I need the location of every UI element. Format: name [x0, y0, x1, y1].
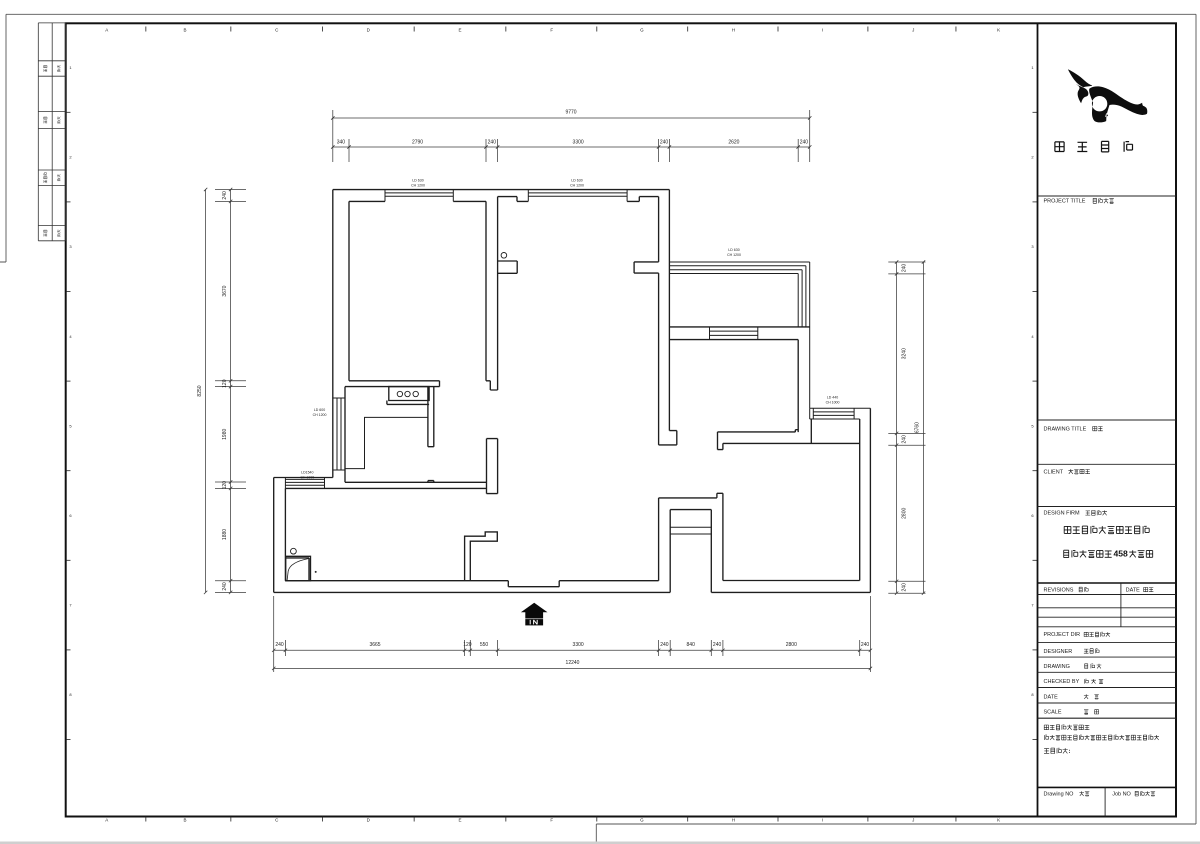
svg-text:I: I — [822, 818, 823, 823]
svg-text:SCALE: SCALE — [1044, 710, 1062, 716]
svg-text:2800: 2800 — [902, 508, 908, 519]
svg-text:LD 440: LD 440 — [827, 395, 838, 399]
svg-text:F: F — [550, 28, 553, 33]
svg-text:240: 240 — [222, 582, 228, 591]
svg-text:240: 240 — [902, 583, 908, 592]
svg-text:E: E — [458, 818, 461, 823]
svg-text:840: 840 — [687, 642, 696, 648]
svg-text:H: H — [732, 28, 735, 33]
svg-text:PROJECT TITLE: PROJECT TITLE — [1044, 199, 1086, 205]
svg-text:3665: 3665 — [369, 642, 380, 648]
svg-text:9770: 9770 — [565, 110, 576, 116]
svg-text:H: H — [732, 818, 735, 823]
svg-text:I: I — [822, 28, 823, 33]
svg-text:340: 340 — [337, 140, 346, 146]
svg-text:J: J — [912, 818, 914, 823]
svg-text:1980: 1980 — [222, 429, 228, 440]
svg-text:240: 240 — [902, 435, 908, 444]
svg-text:2790: 2790 — [412, 140, 423, 146]
svg-text:240: 240 — [660, 642, 669, 648]
svg-text:DRAWING TITLE: DRAWING TITLE — [1044, 426, 1087, 432]
svg-text:E: E — [458, 28, 461, 33]
svg-text:F: F — [550, 818, 553, 823]
svg-text:3300: 3300 — [573, 140, 584, 146]
svg-text:G: G — [640, 818, 644, 823]
svg-text:240: 240 — [800, 140, 809, 146]
svg-text:550: 550 — [480, 642, 489, 648]
svg-text:CLIENT: CLIENT — [1044, 469, 1064, 475]
svg-text:Job NO: Job NO — [1112, 791, 1131, 797]
svg-text:A: A — [105, 818, 108, 823]
svg-text:240: 240 — [861, 642, 870, 648]
svg-text:DESIGNER: DESIGNER — [1044, 649, 1073, 655]
svg-text:B: B — [183, 818, 186, 823]
svg-text:CH 1200: CH 1200 — [727, 253, 741, 257]
svg-text:CHECKED BY: CHECKED BY — [1044, 679, 1080, 685]
svg-text:240: 240 — [222, 191, 228, 200]
svg-text:12240: 12240 — [566, 660, 580, 666]
svg-text:458: 458 — [1114, 549, 1129, 559]
svg-text:PROJECT DIR: PROJECT DIR — [1044, 632, 1081, 638]
svg-text:K: K — [997, 28, 1000, 33]
svg-text:6760: 6760 — [915, 422, 921, 433]
svg-text:LD 630: LD 630 — [412, 178, 423, 182]
svg-text:240: 240 — [660, 140, 669, 146]
svg-text:J: J — [912, 28, 914, 33]
svg-text:2800: 2800 — [786, 642, 797, 648]
svg-text:240: 240 — [488, 140, 497, 146]
svg-text:Drawing NO: Drawing NO — [1044, 791, 1075, 797]
svg-text:LD 630: LD 630 — [571, 178, 582, 182]
svg-text:A: A — [105, 28, 108, 33]
svg-text:DRAWING: DRAWING — [1044, 664, 1070, 670]
svg-text:240: 240 — [902, 264, 908, 273]
svg-text:LD 600: LD 600 — [314, 408, 325, 412]
svg-text:240: 240 — [713, 642, 722, 648]
svg-text:3670: 3670 — [222, 285, 228, 296]
svg-text:B: B — [183, 28, 186, 33]
svg-text:LD 630: LD 630 — [728, 248, 739, 252]
svg-text:DATE: DATE — [1044, 694, 1059, 700]
svg-text:K: K — [997, 818, 1000, 823]
svg-text:3240: 3240 — [902, 348, 908, 359]
svg-text:120: 120 — [222, 481, 228, 490]
svg-text:120: 120 — [463, 642, 472, 648]
svg-text:120: 120 — [222, 379, 228, 388]
svg-text:DATE: DATE — [1126, 587, 1141, 593]
svg-text:1880: 1880 — [222, 529, 228, 540]
svg-text:240: 240 — [275, 642, 284, 648]
svg-text:CH 1200: CH 1200 — [570, 184, 584, 188]
svg-text:CH 1000: CH 1000 — [300, 476, 314, 480]
svg-text:CH 1200: CH 1200 — [411, 184, 425, 188]
svg-text:CH 1000: CH 1000 — [826, 401, 840, 405]
svg-text:2620: 2620 — [728, 140, 739, 146]
svg-text:3300: 3300 — [573, 642, 584, 648]
svg-text:CH 1200: CH 1200 — [313, 413, 327, 417]
svg-text:G: G — [640, 28, 644, 33]
svg-text:DESIGN FIRM: DESIGN FIRM — [1044, 511, 1080, 517]
svg-text:LD1540: LD1540 — [301, 470, 313, 474]
svg-text:REVISIONS: REVISIONS — [1044, 587, 1074, 593]
svg-text:8250: 8250 — [197, 385, 203, 396]
